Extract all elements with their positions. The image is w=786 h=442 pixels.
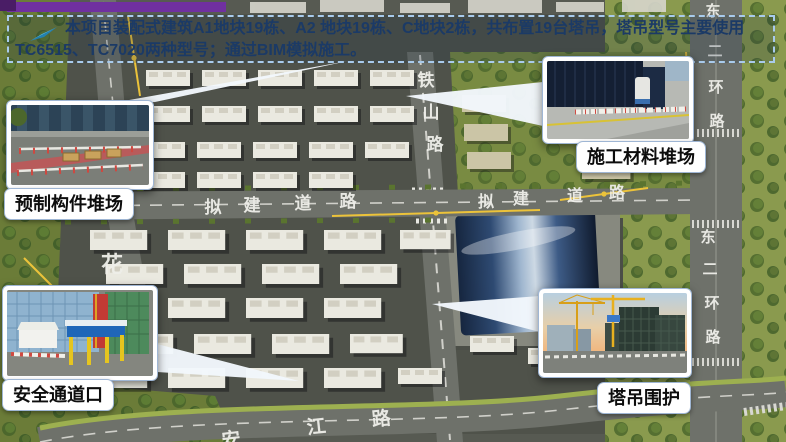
road-label-nijian-east-char: 拟 [478, 192, 494, 211]
road-label-dong-er-huan-north-char: 路 [709, 112, 725, 130]
slide-accent-bar [7, 2, 226, 12]
tower-crane-enclosure-label: 塔吊围护 [597, 382, 691, 414]
precast-component-yard-photo [11, 105, 149, 185]
bim-site-plan-slide: 铁 山 路 拟 建 道 路 拟 建 道 路 东 二 环 路 东 二 环 路 花 … [0, 0, 786, 442]
road-label-anjiang-char: 路 [371, 406, 393, 431]
road-label-dong-er-huan-south-char: 二 [702, 261, 717, 278]
callout-tower-crane-enclosure: 塔吊围护 [538, 288, 692, 378]
road-label-nijian-east-char: 建 [513, 190, 529, 208]
road-label-dong-er-huan-south-char: 东 [700, 228, 715, 246]
road-label-nijian-west-char: 道 [295, 193, 312, 213]
banner-text-line1: 本项目装配式建筑A1地块19栋、A2 地块19栋、C地块2栋，共布置19台塔吊，… [15, 18, 767, 40]
road-label-dong-er-huan-south-char: 环 [704, 295, 719, 312]
road-label-dong-er-huan-south-char: 路 [705, 328, 721, 346]
paper-plane-arrow-icon [29, 24, 59, 44]
precast-component-yard-photo-frame [6, 100, 154, 190]
safety-passage-entrance-photo-frame [2, 285, 158, 381]
construction-material-yard-photo [547, 61, 689, 139]
safety-passage-entrance-label: 安全通道口 [2, 379, 114, 411]
construction-material-yard-photo-frame [542, 56, 694, 144]
road-label-anjiang-char: 江 [306, 415, 327, 439]
construction-material-yard-label: 施工材料堆场 [576, 141, 706, 173]
callout-precast-component-yard: 预制构件堆场 [6, 100, 154, 190]
road-label-tieshan-char: 铁 [418, 70, 435, 90]
road-label-nijian-west-char: 路 [340, 191, 358, 211]
callout-safety-passage-entrance: 安全通道口 [2, 285, 158, 381]
safety-passage-entrance-photo [7, 290, 153, 376]
callout-construction-material-yard: 施工材料堆场 [542, 56, 694, 144]
precast-component-yard-label: 预制构件堆场 [4, 188, 134, 220]
tower-crane-enclosure-photo-frame [538, 288, 692, 378]
road-label-nijian-east-char: 道 [567, 186, 583, 205]
road-label-nijian-west-char: 建 [244, 195, 261, 215]
road-label-tieshan-char: 山 [423, 103, 440, 122]
slide-accent-bar-cap [0, 0, 16, 11]
road-label-nijian-east-char: 路 [609, 183, 626, 202]
road-label-tieshan-char: 路 [427, 134, 445, 154]
road-label-nijian-west-char: 拟 [205, 197, 222, 217]
road-label-hua: 花 [101, 252, 123, 277]
road-label-dong-er-huan-north-char: 环 [708, 79, 723, 96]
tower-crane-enclosure-photo [543, 293, 687, 373]
